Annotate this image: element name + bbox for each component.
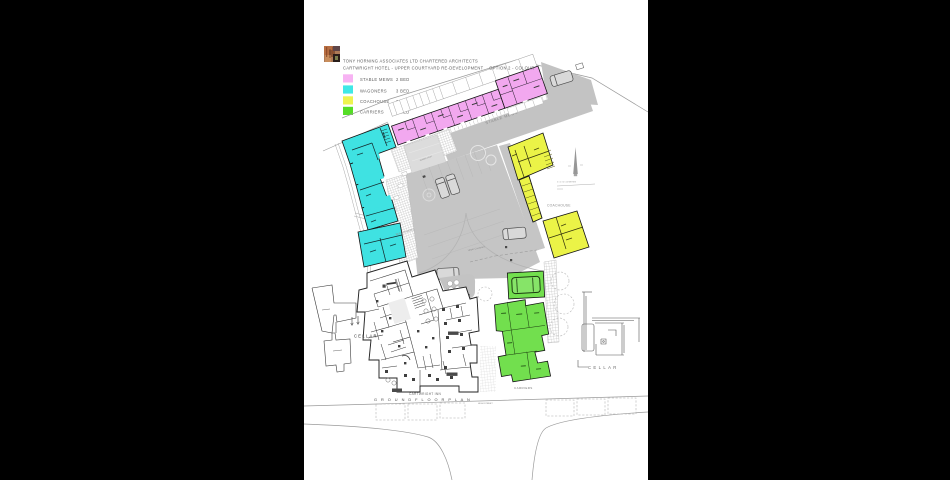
svg-text:COACHOUSE: COACHOUSE bbox=[360, 99, 390, 104]
svg-text:CARTWRIGHT HOTEL - UPPER COURT: CARTWRIGHT HOTEL - UPPER COURTYARD RE-DE… bbox=[343, 66, 535, 71]
svg-text:3 BED: 3 BED bbox=[396, 88, 410, 93]
svg-text:0 1 2 3 4 5 10 METRE: 0 1 2 3 4 5 10 METRES bbox=[557, 182, 577, 184]
svg-text:CARRIERS: CARRIERS bbox=[360, 110, 384, 115]
svg-text:CELLAR: CELLAR bbox=[588, 365, 619, 370]
svg-text:COACHOUSE: COACHOUSE bbox=[547, 204, 571, 208]
svg-text:CARTWRIGHT INN: CARTWRIGHT INN bbox=[409, 392, 441, 396]
svg-text:CELLAR: CELLAR bbox=[354, 334, 378, 339]
svg-text:STABLE MEWS: STABLE MEWS bbox=[360, 77, 393, 82]
svg-text:2 BED: 2 BED bbox=[396, 77, 410, 82]
svg-text:HIGH STREET: HIGH STREET bbox=[478, 403, 493, 405]
svg-text:WAGONERS: WAGONERS bbox=[360, 88, 387, 93]
svg-text:TONY HORNING ASSOCIATES LTD CH: TONY HORNING ASSOCIATES LTD CHARTERED AR… bbox=[343, 59, 478, 64]
svg-text:G R O U N D F L O O R P L: G R O U N D F L O O R P L A N bbox=[374, 397, 471, 402]
svg-text:CARRIERS: CARRIERS bbox=[514, 386, 533, 390]
